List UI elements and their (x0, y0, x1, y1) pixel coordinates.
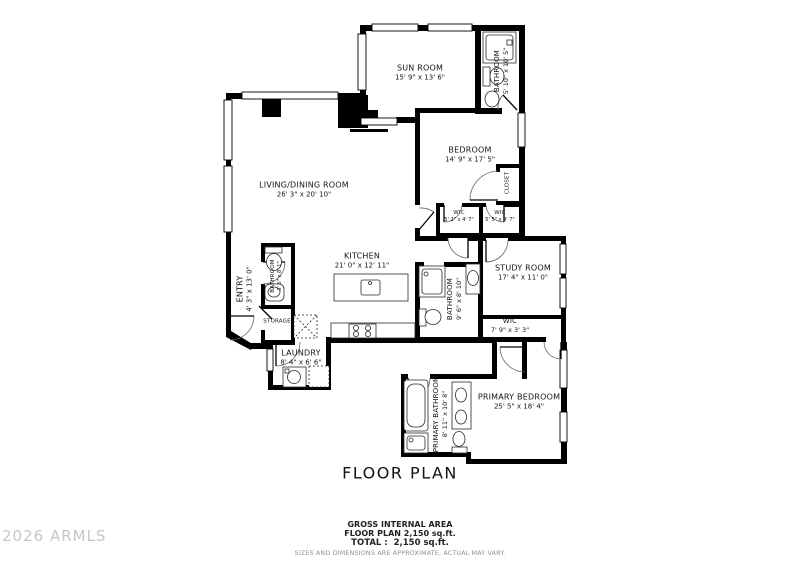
room-label-bathroom-middle: BATHROOM 9' 6" x 8' 10" (446, 278, 464, 320)
room-label-living-dining: LIVING/DINING ROOM 26' 3" x 20' 10" (259, 180, 349, 199)
window (560, 412, 567, 442)
toilet-fixture (452, 432, 467, 454)
room-label-wic-right: WIC 5' 5" x 4' 7" (485, 210, 514, 224)
room-dims: 8' 4" x 6' 6" (280, 359, 321, 368)
room-dims: 7' 9" x 3' 3" (491, 326, 529, 334)
armls-watermark: 2026 ARMLS (2, 527, 106, 545)
window (358, 34, 366, 90)
room-label-entry: ENTRY 4' 3" x 13' 0" (235, 266, 254, 312)
room-label-kitchen: KITCHEN 21' 0" x 12' 11" (335, 251, 390, 270)
room-dims: 8' 11" x 10' 8" (441, 376, 449, 453)
room-name: KITCHEN (335, 251, 390, 261)
double-vanity-fixture (452, 382, 471, 429)
sink-fixture (466, 264, 480, 294)
room-dims: 5' 5" x 4' 7" (485, 217, 514, 224)
room-label-primary-bedroom: PRIMARY BEDROOM 25' 5" x 18' 4" (478, 392, 560, 411)
room-label-study-room: STUDY ROOM 17' 4" x 11' 0" (495, 263, 551, 282)
dryer-space-fixture (309, 366, 329, 387)
window (361, 118, 397, 125)
room-name: SUN ROOM (395, 63, 445, 73)
window (224, 100, 232, 160)
fireplace-blocks (262, 95, 388, 132)
room-label-laundry: LAUNDRY 8' 4" x 6' 6" (280, 348, 321, 367)
room-name: WIC (444, 210, 473, 217)
window (372, 24, 418, 31)
room-name: BATHROOM (270, 259, 277, 292)
room-label-bathroom-entry: BATHROOM 3' 6" x 8' 1" (270, 259, 284, 292)
room-name: WIC (485, 210, 514, 217)
room-name: LIVING/DINING ROOM (259, 180, 349, 190)
room-dims: 21' 0" x 12' 11" (335, 262, 390, 271)
disclaimer-text: SIZES AND DIMENSIONS ARE APPROXIMATE, AC… (295, 550, 506, 557)
room-label-primary-bathroom: PRIMARY BATHROOM 8' 11" x 10' 8" (432, 376, 450, 453)
room-dims: 9' 6" x 8' 10" (455, 278, 463, 320)
room-dims: 5' 10" x 10' 5" (502, 48, 510, 94)
room-name: BEDROOM (445, 145, 495, 155)
room-label-closet: CLOSET (504, 172, 511, 195)
room-name: BATHROOM (493, 48, 502, 94)
window (267, 349, 273, 371)
room-name: BATHROOM (446, 278, 455, 320)
room-name: PRIMARY BEDROOM (478, 392, 560, 402)
floor-plan-area-value: FLOOR PLAN 2,150 sq.ft. (295, 529, 506, 538)
stove-fixture (331, 323, 415, 338)
toilet-fixture (419, 309, 441, 326)
room-name: LAUNDRY (280, 348, 321, 358)
shower-fixture (404, 433, 428, 453)
room-dims: 5' 2" x 4' 7" (444, 217, 473, 224)
room-label-bedroom: BEDROOM 14' 9" x 17' 5" (445, 145, 495, 164)
room-dims: 15' 9" x 13' 6" (395, 74, 445, 83)
window (242, 92, 338, 99)
bathtub-fixture (404, 380, 428, 431)
total-area-value: TOTAL : 2,150 sq.ft. (295, 538, 506, 548)
room-dims: 14' 9" x 17' 5" (445, 156, 495, 165)
room-label-wic-left: WIC 5' 2" x 4' 7" (444, 210, 473, 224)
gross-internal-area-label: GROSS INTERNAL AREA (295, 520, 506, 529)
window (224, 166, 232, 232)
room-dims: 25' 5" x 18' 4" (478, 403, 560, 412)
footer-area-summary: GROSS INTERNAL AREA FLOOR PLAN 2,150 sq.… (295, 520, 506, 557)
room-name: WIC (491, 317, 529, 326)
room-dims: 4' 3" x 13' 0" (246, 266, 255, 312)
room-label-sun-room: SUN ROOM 15' 9" x 13' 6" (395, 63, 445, 82)
window (560, 244, 566, 274)
room-dims: 26' 3" x 20' 10" (259, 191, 349, 200)
room-label-wic-hall: WIC 7' 9" x 3' 3" (491, 317, 529, 335)
room-dims: 17' 4" x 11' 0" (495, 274, 551, 283)
fireplace-icon (262, 99, 281, 117)
shower-fixture (419, 266, 445, 297)
water-heater-fixture (294, 315, 317, 338)
room-name: CLOSET (504, 172, 511, 195)
room-name: PRIMARY BATHROOM (432, 376, 441, 453)
window (560, 278, 566, 308)
room-name: STORAGE (263, 318, 291, 325)
kitchen-island (334, 274, 408, 301)
window (518, 113, 525, 147)
room-label-bathroom-top: BATHROOM 5' 10" x 10' 5" (493, 48, 511, 94)
room-name: STUDY ROOM (495, 263, 551, 273)
window (428, 24, 472, 31)
room-name: ENTRY (235, 266, 245, 312)
floor-plan-page: SUN ROOM 15' 9" x 13' 6" BATHROOM 5' 10"… (0, 0, 800, 565)
room-label-storage: STORAGE (263, 318, 291, 325)
room-dims: 3' 6" x 8' 1" (277, 259, 284, 292)
page-title: FLOOR PLAN (342, 464, 458, 483)
washer-fixture (283, 367, 306, 387)
